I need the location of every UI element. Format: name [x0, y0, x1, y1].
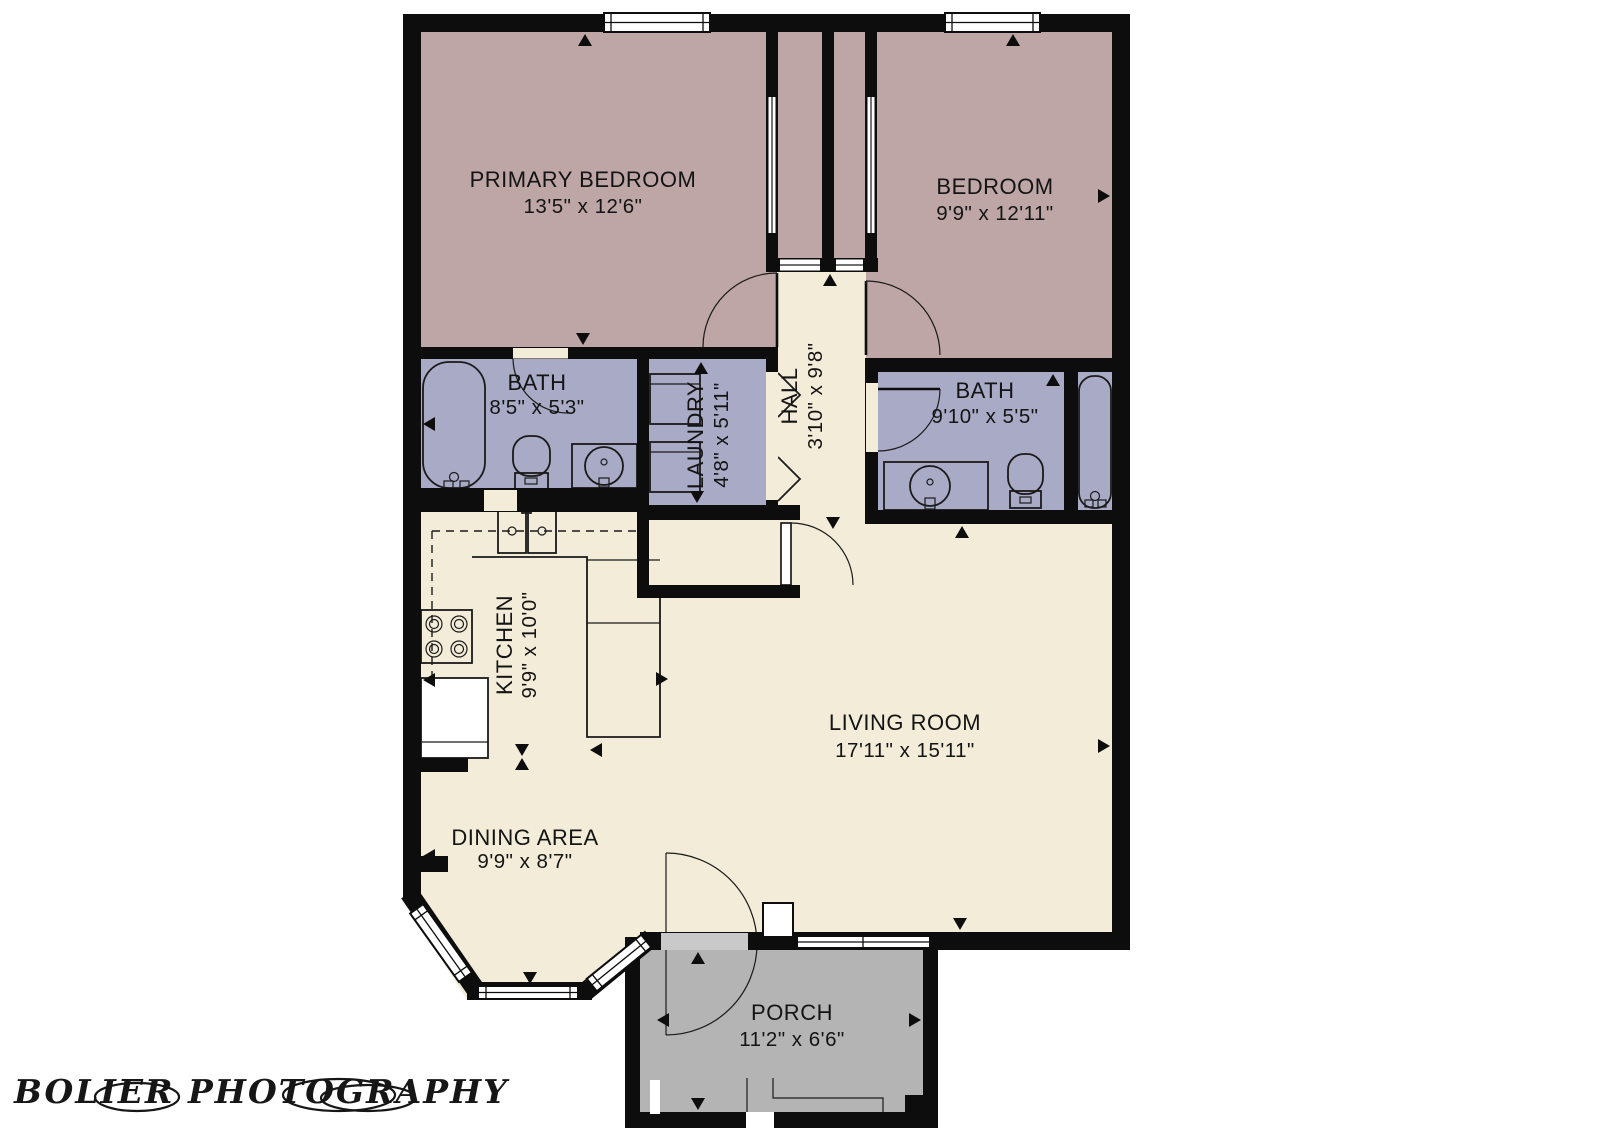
wall-segment — [625, 1112, 938, 1128]
wall-segment — [637, 505, 649, 598]
room-label-porch: PORCH — [751, 1000, 833, 1025]
room-label-hall: HALL — [777, 367, 802, 424]
room-label-bedroom: BEDROOM — [936, 174, 1053, 199]
wall-segment — [1064, 372, 1078, 510]
wall-segment — [905, 1095, 938, 1128]
room-laundry — [649, 359, 767, 506]
wall-segment — [421, 758, 468, 772]
wall-segment — [865, 510, 1130, 524]
floor-plan-page: PRIMARY BEDROOM 13'5" x 12'6" BEDROOM 9'… — [0, 0, 1600, 1133]
refrigerator-icon — [421, 678, 488, 758]
room-label-bath-left: BATH — [507, 370, 566, 395]
room-dims-dining-area: 9'9" x 8'7" — [477, 850, 572, 873]
wall-segment — [865, 358, 1130, 372]
entry-threshold — [661, 933, 748, 950]
room-dims-living-room: 17'11" x 15'11" — [835, 739, 975, 762]
room-dims-bath-right: 9'10" x 5'5" — [931, 405, 1038, 428]
wall-segment — [778, 505, 800, 520]
porch-post — [763, 903, 793, 937]
room-dims-bath-left: 8'5" x 5'3" — [489, 396, 584, 419]
floor-plan: PRIMARY BEDROOM 13'5" x 12'6" BEDROOM 9'… — [0, 0, 1600, 1133]
window-icon — [604, 13, 710, 32]
wall-segment — [637, 585, 800, 598]
watermark: BOLIER PHOTOGRAPHY — [13, 1072, 510, 1111]
wall-segment — [637, 505, 778, 520]
room-label-dining-area: DINING AREA — [451, 825, 598, 850]
wall-opening — [484, 490, 517, 511]
window-icon — [478, 986, 578, 999]
room-label-laundry: LAUNDRY — [683, 381, 708, 489]
wall-segment — [1112, 14, 1130, 950]
room-label-kitchen: KITCHEN — [492, 595, 517, 695]
room-label-primary-bedroom: PRIMARY BEDROOM — [470, 167, 697, 192]
wall-segment — [822, 32, 834, 258]
room-dims-primary-bedroom: 13'5" x 12'6" — [524, 195, 643, 218]
door-opening — [866, 383, 878, 452]
room-dims-kitchen: 9'9" x 10'0" — [518, 591, 541, 698]
wall-segment — [403, 488, 649, 512]
door-opening — [513, 348, 568, 359]
room-dims-porch: 11'2" x 6'6" — [739, 1028, 845, 1051]
wall-segment — [403, 347, 778, 359]
room-dims-bedroom: 9'9" x 12'11" — [936, 202, 1053, 225]
window-icon — [797, 936, 930, 948]
wall-segment — [403, 14, 421, 898]
room-label-bath-right: BATH — [955, 378, 1014, 403]
wall-segment — [403, 856, 448, 872]
room-dims-laundry: 4'8" x 5'11" — [710, 382, 733, 488]
window-icon — [945, 13, 1040, 32]
room-dims-hall: 3'10" x 9'8" — [804, 342, 827, 449]
watermark-text: BOLIER PHOTOGRAPHY — [13, 1072, 510, 1111]
room-label-living-room: LIVING ROOM — [829, 710, 981, 735]
